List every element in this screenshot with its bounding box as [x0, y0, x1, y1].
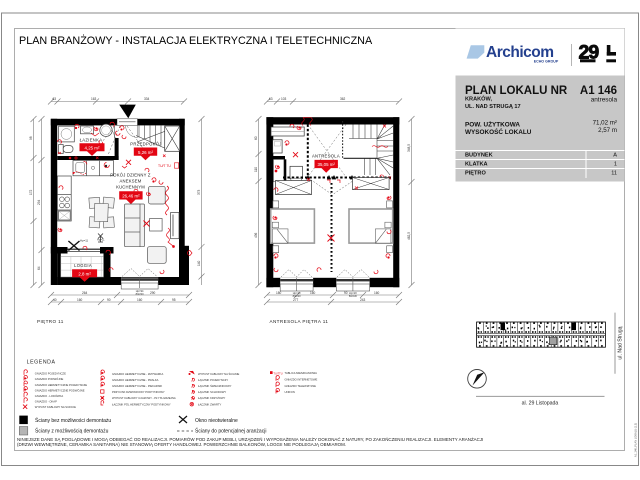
svg-text:160: 160 [310, 291, 316, 295]
svg-text:163: 163 [91, 97, 97, 101]
svg-text:80/230: 80/230 [136, 292, 144, 296]
svg-text:ŁĄCZNIK SCHODOWY: ŁĄCZNIK SCHODOWY [198, 390, 226, 394]
svg-text:71,02 m²: 71,02 m² [593, 120, 617, 127]
svg-text:2,8 m²: 2,8 m² [78, 271, 91, 276]
svg-text:64: 64 [37, 266, 41, 270]
svg-text:Okno nieotwieralne: Okno nieotwieralne [195, 418, 238, 424]
svg-text:WYPUST KABLOWY NA SUFICIE: WYPUST KABLOWY NA SUFICIE [35, 405, 76, 409]
svg-text:A: A [613, 153, 617, 159]
svg-text:2,57 m: 2,57 m [598, 127, 617, 134]
svg-text:A1 146: A1 146 [580, 85, 617, 97]
svg-text:KRAKÓW,: KRAKÓW, [465, 95, 492, 103]
svg-text:4,25 m²: 4,25 m² [85, 146, 100, 151]
svg-text:334: 334 [144, 97, 150, 101]
svg-text:GNIAZDO - OKAP: GNIAZDO - OKAP [35, 400, 57, 404]
svg-text:243: 243 [360, 298, 366, 302]
svg-text:ANTRESOLA PIĘTRA 11: ANTRESOLA PIĘTRA 11 [270, 319, 329, 324]
svg-text:160: 160 [137, 298, 143, 302]
svg-text:60: 60 [254, 136, 258, 140]
svg-text:160: 160 [77, 298, 83, 302]
svg-text:KLATKA: KLATKA [465, 162, 488, 168]
svg-text:PRZYCISK DZWONKOWY PODTYNKOWY: PRZYCISK DZWONKOWY PODTYNKOWY [112, 390, 165, 394]
svg-text:antresola: antresola [591, 97, 618, 104]
svg-text:26,46 m²: 26,46 m² [122, 194, 140, 199]
svg-text:11: 11 [611, 171, 617, 177]
svg-text:110: 110 [254, 167, 258, 172]
svg-text:PLAN LOKALU NR: PLAN LOKALU NR [465, 85, 568, 97]
svg-text:ul. Nad Strugą: ul. Nad Strugą [618, 326, 624, 359]
svg-text:180: 180 [276, 291, 282, 295]
svg-text:LEGENDA: LEGENDA [27, 360, 56, 366]
svg-text:172: 172 [29, 189, 33, 195]
svg-text:ANTRESOLA: ANTRESOLA [312, 154, 340, 159]
svg-text:PIĘTRO 11: PIĘTRO 11 [37, 319, 64, 324]
svg-text:277: 277 [293, 298, 299, 302]
svg-text:40: 40 [53, 298, 57, 302]
svg-text:A1_146_PLAN LOKALU (1.2): A1_146_PLAN LOKALU (1.2) [634, 423, 638, 457]
svg-text:436: 436 [254, 232, 258, 238]
svg-text:TABLICA MIESZKANIOWA: TABLICA MIESZKANIOWA [285, 371, 318, 375]
svg-text:80/230: 80/230 [293, 294, 301, 298]
svg-text:80/230: 80/230 [349, 294, 357, 298]
svg-text:TU/T TU: TU/T TU [158, 164, 171, 168]
svg-text:290: 290 [150, 291, 156, 295]
svg-text:BUDYNEK: BUDYNEK [465, 153, 493, 159]
svg-text:GNIAZDO TELEWIZYJNE: GNIAZDO TELEWIZYJNE [285, 384, 317, 388]
svg-text:GNIAZDO INTERNETOWE: GNIAZDO INTERNETOWE [285, 377, 318, 381]
svg-text:LOGGIA: LOGGIA [74, 263, 92, 268]
svg-text:264: 264 [82, 291, 88, 295]
svg-text:373: 373 [197, 189, 201, 195]
svg-text:Ściany bez możliwości demonta: Ściany bez możliwości demontażu [35, 416, 111, 424]
svg-text:462,5: 462,5 [407, 232, 411, 240]
svg-text:WYSOKOŚĆ LOKALU: WYSOKOŚĆ LOKALU [465, 127, 532, 136]
svg-text:GNIAZDO HERMETYCZNE - ZMYWARKA: GNIAZDO HERMETYCZNE - ZMYWARKA [112, 372, 163, 376]
svg-text:al. 29 Listopada: al. 29 Listopada [522, 401, 559, 407]
svg-text:ŁĄCZNIK ZWARTY: ŁĄCZNIK ZWARTY [198, 402, 222, 406]
svg-text:362: 362 [340, 97, 346, 101]
svg-text:ECHO GROUP: ECHO GROUP [534, 60, 559, 64]
svg-text:PLAN BRANŻOWY - INSTALACJA ELE: PLAN BRANŻOWY - INSTALACJA ELEKTRYCZNA I… [19, 34, 373, 47]
svg-text:95: 95 [172, 298, 176, 302]
svg-text:POW. UŻYTKOWA: POW. UŻYTKOWA [465, 120, 520, 129]
svg-text:348,5: 348,5 [407, 144, 411, 152]
svg-text:Ściany z możliwością demontaż: Ściany z możliwością demontażu [35, 427, 109, 435]
svg-text:Hp=11: Hp=11 [97, 238, 105, 242]
svg-text:TU/TTU: TU/TTU [273, 371, 282, 375]
svg-text:35,05 m²: 35,05 m² [318, 162, 336, 167]
svg-text:Hp=11: Hp=11 [80, 239, 89, 243]
svg-text:PIĘTRO: PIĘTRO [465, 171, 486, 177]
svg-text:GNIAZDO HERMETYCZNE - PRALKA: GNIAZDO HERMETYCZNE - PRALKA [112, 378, 159, 382]
svg-text:1: 1 [614, 162, 617, 168]
svg-text:90: 90 [344, 291, 348, 295]
svg-text:294: 294 [37, 199, 41, 205]
svg-text:GNIAZDO HERMETYCZNE - PIEKARNI: GNIAZDO HERMETYCZNE - PIEKARNIK [112, 384, 162, 388]
svg-text:(DRZWI WEWNĘTRZNE, CERAMIKA SA: (DRZWI WEWNĘTRZNE, CERAMIKA SANITARNA) N… [17, 441, 346, 447]
svg-text:160: 160 [374, 291, 380, 295]
svg-text:UNIFON: UNIFON [285, 390, 295, 394]
svg-text:103: 103 [281, 97, 287, 101]
svg-text:Ściany do potencjalnej aranżac: Ściany do potencjalnej aranżacji [195, 427, 266, 435]
svg-text:63: 63 [53, 97, 57, 101]
svg-text:140: 140 [197, 260, 201, 266]
svg-text:5,26 m²: 5,26 m² [138, 150, 153, 155]
svg-text:98: 98 [29, 136, 33, 140]
svg-text:63: 63 [269, 97, 273, 101]
svg-text:KUCHENNYM: KUCHENNYM [116, 185, 145, 190]
svg-text:90: 90 [107, 298, 111, 302]
svg-text:Archicom: Archicom [486, 44, 554, 61]
svg-text:GNIAZDO POJEDYNCZE: GNIAZDO POJEDYNCZE [35, 372, 66, 376]
svg-text:WYPUST KABLOWY 3-FAZOWY - PŁYT: WYPUST KABLOWY 3-FAZOWY - PŁYTA GRZEJNA [112, 396, 176, 400]
svg-text:ŁĄCZNIK POJEDYNCZY: ŁĄCZNIK POJEDYNCZY [198, 378, 228, 382]
svg-text:ANEKSEM: ANEKSEM [120, 179, 142, 184]
svg-text:GNIAZDO HERMETYCZNE POJEDYNCZE: GNIAZDO HERMETYCZNE POJEDYNCZE [35, 383, 87, 387]
svg-text:POKÓJ DZIENNY Z: POKÓJ DZIENNY Z [110, 173, 151, 178]
svg-text:UL. NAD STRUGĄ 17: UL. NAD STRUGĄ 17 [465, 104, 521, 110]
svg-text:PRZEDPOKÓJ: PRZEDPOKÓJ [130, 141, 161, 146]
